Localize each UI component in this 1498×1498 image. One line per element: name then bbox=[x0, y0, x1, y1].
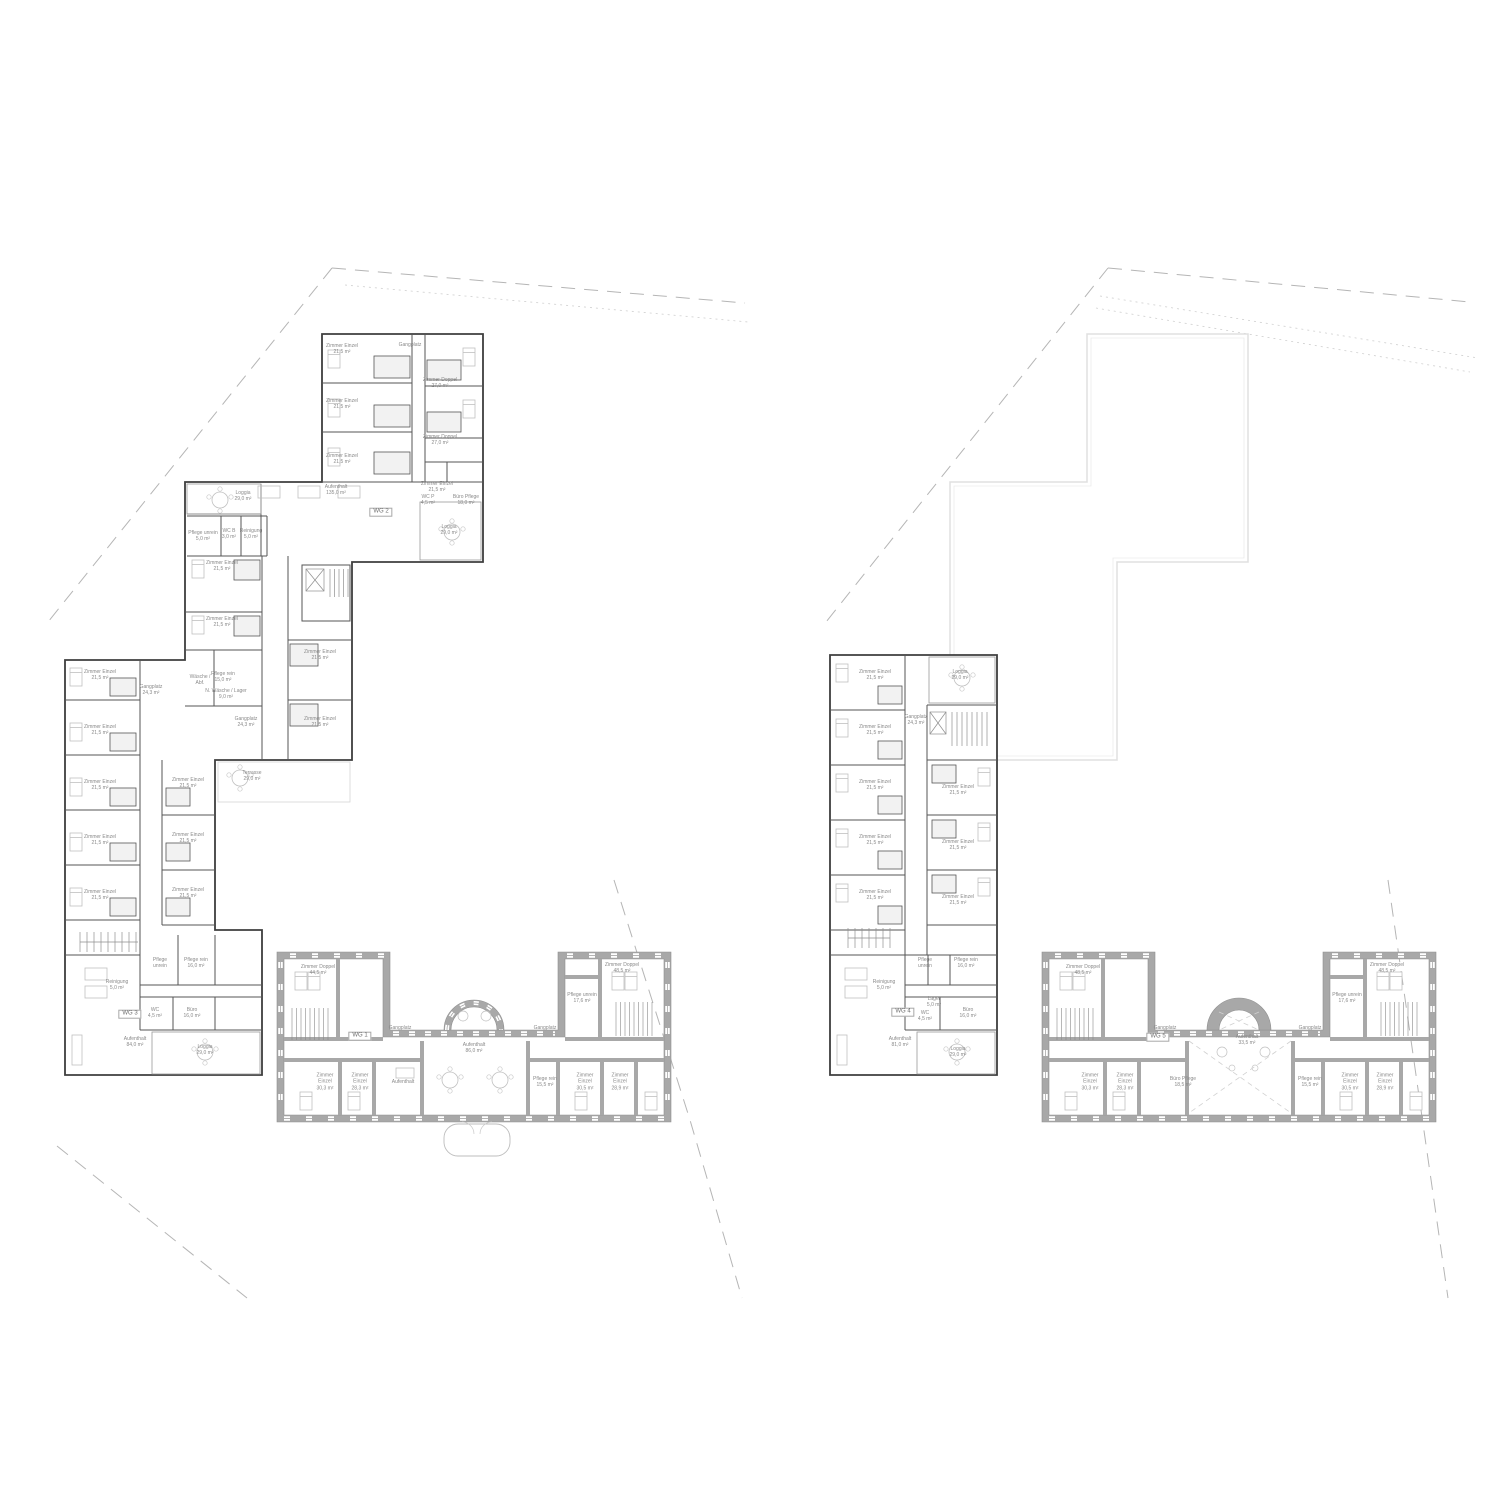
room-label: Büro 16,0 m² bbox=[960, 1007, 977, 1020]
room-label: Gangplatz bbox=[1299, 1025, 1322, 1031]
room-label: Zimmer Einzel 21,5 m² bbox=[859, 724, 891, 737]
room-label: Zimmer Einzel 21,5 m² bbox=[84, 889, 116, 902]
room-label: Aufenthalt 84,0 m² bbox=[124, 1036, 147, 1049]
room-label: Loggia 29,0 m² bbox=[441, 524, 458, 537]
room-label: WC 4,5 m² bbox=[148, 1007, 162, 1020]
room-label: Zimmer Einzel 21,5 m² bbox=[326, 343, 358, 356]
room-label: Reinigung 5,0 m² bbox=[873, 979, 896, 992]
room-label: Zimmer Einzel 21,5 m² bbox=[84, 834, 116, 847]
wg-tag: WG 3 bbox=[118, 1010, 141, 1019]
wg-tag: WG 1 bbox=[348, 1032, 371, 1041]
room-label: Zimmer Einzel 21,5 m² bbox=[859, 834, 891, 847]
room-label: Aufenthalt 81,0 m² bbox=[889, 1036, 912, 1049]
room-label: Zimmer Einzel 28,3 m² bbox=[1117, 1073, 1134, 1092]
room-label: Büro Pflege 18,0 m² bbox=[453, 494, 479, 507]
label-layer: Zimmer Einzel 21,5 m²GangplatzZimmer Dop… bbox=[0, 0, 1498, 1498]
room-label: Zimmer Doppel 27,0 m² bbox=[423, 434, 457, 447]
room-label: Wäsche / Abf. bbox=[190, 674, 211, 687]
room-label: Aufenthalt bbox=[392, 1079, 415, 1085]
room-label: Zimmer Einzel 21,5 m² bbox=[206, 560, 238, 573]
room-label: Zimmer Einzel 21,5 m² bbox=[859, 889, 891, 902]
room-label: Aufenthalt 86,0 m² bbox=[463, 1042, 486, 1055]
room-label: Pflege rein 16,0 m² bbox=[184, 957, 208, 970]
room-label: Pflege rein 16,0 m² bbox=[954, 957, 978, 970]
room-label: Zimmer Einzel 28,3 m² bbox=[352, 1073, 369, 1092]
room-label: Pflege unrein 5,0 m² bbox=[188, 530, 217, 543]
room-label: Zimmer Einzel 21,5 m² bbox=[84, 779, 116, 792]
room-label: Pflege rein 15,5 m² bbox=[1298, 1076, 1322, 1089]
room-label: Pflege unrein 17,6 m² bbox=[567, 992, 596, 1005]
room-label: Pflege unrein 17,6 m² bbox=[1332, 992, 1361, 1005]
room-label: Zimmer Einzel 21,5 m² bbox=[421, 481, 453, 494]
room-label: Loggia 29,0 m² bbox=[950, 1046, 967, 1059]
room-label: Loggia 29,0 m² bbox=[235, 490, 252, 503]
room-label: Zimmer Einzel 30,5 m² bbox=[577, 1073, 594, 1092]
room-label: Zimmer Doppel 27,0 m² bbox=[423, 377, 457, 390]
room-label: Pflege rein 15,0 m² bbox=[211, 671, 235, 684]
room-label: WC B 3,0 m² bbox=[222, 528, 236, 541]
room-label: Reinigung 5,0 m² bbox=[240, 528, 263, 541]
room-label: Reinigung 5,0 m² bbox=[106, 979, 129, 992]
room-label: Zimmer Einzel 30,3 m² bbox=[1082, 1073, 1099, 1092]
room-label: Zimmer Einzel 21,5 m² bbox=[172, 777, 204, 790]
room-label: Gangplatz 24,3 m² bbox=[905, 714, 928, 727]
room-label: Loggia 29,0 m² bbox=[197, 1044, 214, 1057]
room-label: Zimmer Einzel 21,5 m² bbox=[172, 887, 204, 900]
room-label: N. Wäsche / Lager 9,0 m² bbox=[205, 688, 246, 701]
room-label: Zimmer Doppel 44,5 m² bbox=[301, 964, 335, 977]
room-label: Zimmer Einzel 21,5 m² bbox=[859, 779, 891, 792]
room-label: Pflege unrein bbox=[153, 957, 167, 970]
room-label: Zimmer Einzel 21,5 m² bbox=[84, 724, 116, 737]
room-label: Zimmer Einzel 21,5 m² bbox=[326, 398, 358, 411]
room-label: Zimmer Einzel 21,5 m² bbox=[326, 453, 358, 466]
room-label: Zimmer Einzel 21,5 m² bbox=[859, 669, 891, 682]
room-label: Zimmer Einzel 28,9 m² bbox=[612, 1073, 629, 1092]
room-label: Zimmer Einzel 30,3 m² bbox=[317, 1073, 334, 1092]
wg-tag: WG 4 bbox=[891, 1008, 914, 1017]
room-label: Pflege unrein bbox=[918, 957, 932, 970]
room-label: Zimmer Einzel 21,5 m² bbox=[206, 616, 238, 629]
site-plan-canvas: Zimmer Einzel 21,5 m²GangplatzZimmer Dop… bbox=[0, 0, 1498, 1498]
room-label: Zimmer Einzel 28,9 m² bbox=[1377, 1073, 1394, 1092]
room-label: Gangplatz 24,3 m² bbox=[140, 684, 163, 697]
room-label: Aufenthalt 33,5 m² bbox=[1236, 1034, 1259, 1047]
room-label: Zimmer Einzel 21,5 m² bbox=[304, 649, 336, 662]
room-label: Zimmer Doppel 48,5 m² bbox=[605, 962, 639, 975]
room-label: WC P 4,5 m² bbox=[421, 494, 435, 507]
room-label: Terrasse 29,0 m² bbox=[242, 770, 261, 783]
room-label: Aufenthalt 135,0 m² bbox=[325, 484, 348, 497]
room-label: Zimmer Einzel 30,5 m² bbox=[1342, 1073, 1359, 1092]
room-label: Gangplatz bbox=[534, 1025, 557, 1031]
room-label: Pflege rein 15,5 m² bbox=[533, 1076, 557, 1089]
room-label: Zimmer Einzel 21,5 m² bbox=[84, 669, 116, 682]
room-label: Loggia 29,0 m² bbox=[952, 669, 969, 682]
room-label: Lager 5,0 m² bbox=[927, 996, 941, 1009]
room-label: Gangplatz bbox=[389, 1025, 412, 1031]
wg-tag: WG 5 bbox=[1146, 1033, 1169, 1042]
room-label: Zimmer Doppel 48,5 m² bbox=[1066, 964, 1100, 977]
wg-tag: WG 2 bbox=[369, 508, 392, 517]
room-label: Gangplatz bbox=[399, 342, 422, 348]
room-label: Büro Pflege 18,5 m² bbox=[1170, 1076, 1196, 1089]
room-label: Zimmer Einzel 21,5 m² bbox=[304, 716, 336, 729]
room-label: Zimmer Einzel 21,5 m² bbox=[942, 894, 974, 907]
room-label: Zimmer Einzel 21,5 m² bbox=[942, 784, 974, 797]
room-label: Gangplatz bbox=[1154, 1025, 1177, 1031]
room-label: Zimmer Einzel 21,5 m² bbox=[942, 839, 974, 852]
room-label: Zimmer Doppel 48,5 m² bbox=[1370, 962, 1404, 975]
room-label: WC 4,5 m² bbox=[918, 1010, 932, 1023]
room-label: Gangplatz 24,3 m² bbox=[235, 716, 258, 729]
room-label: Zimmer Einzel 21,5 m² bbox=[172, 832, 204, 845]
room-label: Büro 16,0 m² bbox=[184, 1007, 201, 1020]
